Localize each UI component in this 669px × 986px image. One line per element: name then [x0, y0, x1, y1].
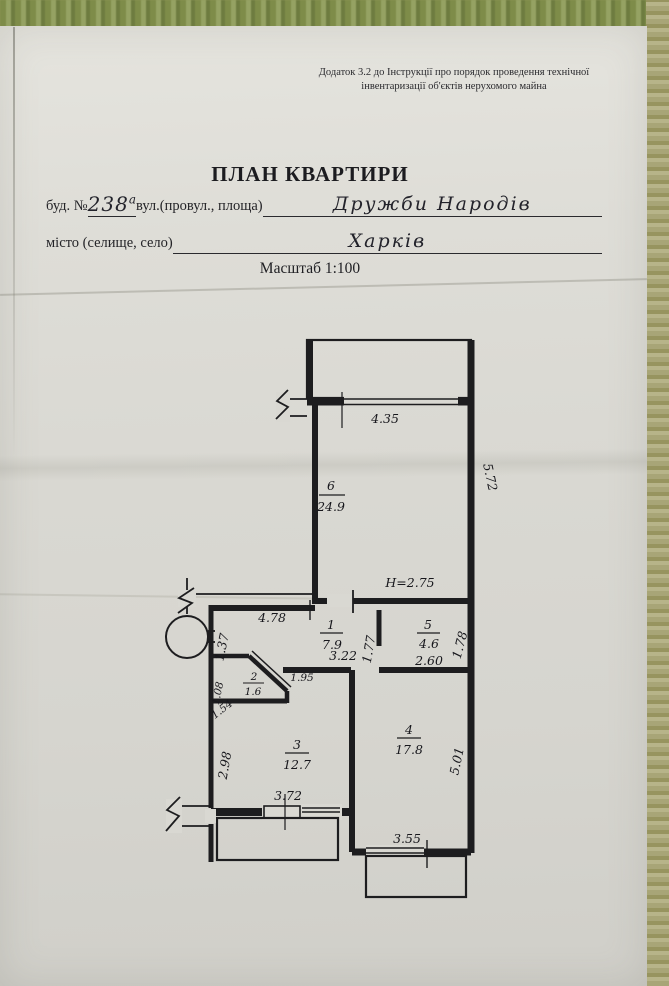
room3-area: 12.7	[283, 757, 311, 772]
room4-number: 4	[404, 722, 413, 737]
room3-labels: 3 12.7 2.98 3.72	[215, 737, 311, 803]
room6-area: 24.9	[316, 499, 345, 514]
city-value: Харків	[173, 230, 602, 254]
dim-room3-bottom: 3.72	[274, 788, 302, 803]
section-break-top-left	[276, 390, 307, 422]
building-number-label: буд. №	[46, 198, 88, 217]
room5-labels: 1.77 5 4.6 2.60 1.78	[359, 617, 471, 668]
dim-room1-bottom: 3.22	[329, 648, 357, 663]
document-title: ПЛАН КВАРТИРИ	[20, 162, 600, 187]
dim-room1-top: 4.78	[257, 610, 286, 625]
regulation-note-line2: інвентаризації об'єктів нерухомого майна	[303, 80, 605, 94]
room4-area: 17.8	[395, 742, 423, 757]
street-value: Дружби Народів	[263, 193, 602, 217]
photo-background-right	[646, 0, 669, 986]
building-number-digits: 238	[88, 192, 129, 216]
room5-number: 5	[424, 617, 432, 632]
room5-area: 4.6	[418, 636, 439, 651]
photographed-document: { "photo": { "background_top_green": "#7…	[0, 0, 669, 986]
dim-room6-right: 5.72	[480, 462, 500, 492]
dim-room5-left: 1.77	[359, 634, 379, 664]
room4-walls	[352, 840, 471, 897]
regulation-note: Додаток 3.2 до Інструкції про порядок пр…	[303, 66, 605, 94]
photo-background-top	[0, 0, 669, 28]
building-street-field-row: буд. № 238а вул.(провул., площа) Дружби …	[46, 192, 602, 217]
room2-area: 1.6	[245, 686, 262, 698]
dim-room5-right: 1.78	[449, 629, 471, 660]
building-number-value: 238а	[88, 192, 136, 217]
dim-hall-opening: 1.95	[290, 672, 314, 684]
dim-room3-left: 2.98	[215, 750, 235, 781]
door-opening	[205, 809, 216, 823]
room6-number: 6	[327, 478, 335, 493]
room1-number: 1	[327, 617, 335, 632]
dim-window6: 4.35	[370, 411, 399, 426]
scale-label: Масштаб 1:100	[20, 260, 600, 278]
loggia-bottom-left	[217, 818, 338, 860]
room2-labels: 2 1.6 1.08 1.54 1.95	[209, 671, 314, 722]
building-number-letter: а	[129, 192, 136, 206]
floor-plan: 4.35 5.72 6 24.9 H=2.75 4.78 1.37 1 7.9 …	[150, 315, 500, 915]
service-shaft	[166, 616, 215, 658]
loggia-top	[307, 340, 471, 399]
dim-room4-bottom: 3.55	[393, 831, 421, 846]
room4-labels: 4 17.8 5.01 3.55	[393, 722, 467, 846]
room2-number: 2	[250, 671, 258, 683]
room3-number: 3	[293, 737, 301, 752]
city-label: місто (селище, село)	[46, 235, 173, 254]
street-label: вул.(провул., площа)	[136, 198, 263, 217]
paper-fold-line	[13, 27, 15, 457]
door-opening	[327, 594, 353, 607]
chute-circle-icon	[166, 616, 208, 658]
ceiling-height-note: H=2.75	[384, 575, 434, 590]
balcony-bottom-right	[366, 856, 466, 897]
regulation-note-line1: Додаток 3.2 до Інструкції про порядок пр…	[303, 66, 605, 80]
dim-room4-right: 5.01	[446, 746, 466, 776]
city-field-row: місто (селище, село) Харків	[46, 230, 602, 254]
dim-room5-bottom: 2.60	[414, 653, 443, 668]
